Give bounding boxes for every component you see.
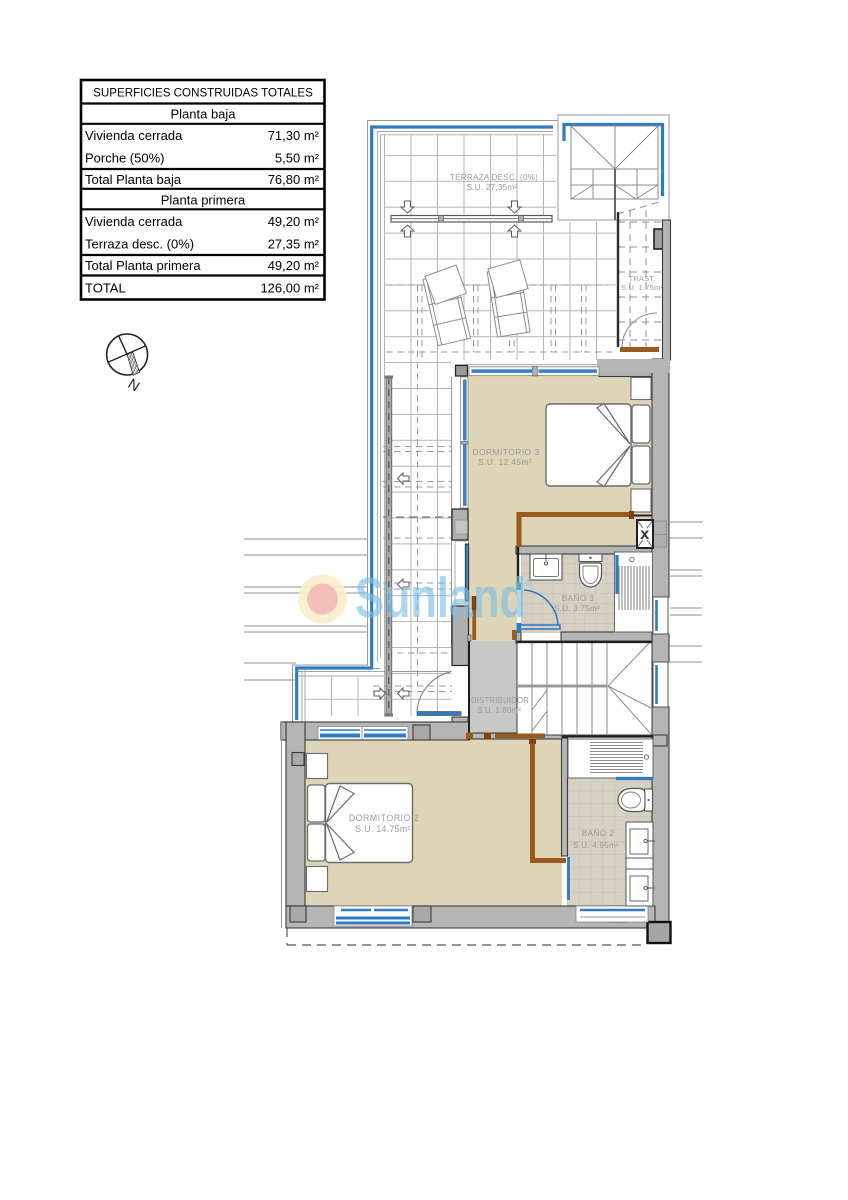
- svg-text:SUPERFICIES CONSTRUIDAS TOTALE: SUPERFICIES CONSTRUIDAS TOTALES: [93, 87, 313, 100]
- svg-text:71,30 m²: 71,30 m²: [268, 128, 320, 143]
- svg-text:Porche (50%): Porche (50%): [85, 151, 164, 166]
- svg-text:S.U. 3.75m²: S.U. 3.75m²: [554, 604, 600, 613]
- svg-text:TERRAZA DESC. (0%): TERRAZA DESC. (0%): [450, 173, 538, 182]
- svg-text:BAÑO 3: BAÑO 3: [562, 593, 594, 603]
- svg-text:Total Planta baja: Total Planta baja: [85, 172, 182, 187]
- svg-text:27,35 m²: 27,35 m²: [268, 237, 320, 252]
- svg-text:DISTRIBUIDOR: DISTRIBUIDOR: [471, 696, 529, 705]
- svg-text:X: X: [641, 530, 649, 542]
- svg-text:BAÑO 2: BAÑO 2: [582, 828, 614, 838]
- svg-text:Vivienda cerrada: Vivienda cerrada: [85, 128, 183, 143]
- svg-text:S.U. 1.80m²: S.U. 1.80m²: [477, 706, 521, 715]
- svg-text:DORMITORIO 2: DORMITORIO 2: [349, 813, 419, 823]
- svg-text:49,20 m²: 49,20 m²: [268, 214, 320, 229]
- svg-text:Total Planta primera: Total Planta primera: [85, 258, 201, 273]
- svg-text:Terraza desc. (0%): Terraza desc. (0%): [85, 237, 194, 252]
- svg-text:5,50 m²: 5,50 m²: [275, 151, 320, 166]
- svg-text:®: ®: [525, 578, 533, 590]
- svg-text:49,20 m²: 49,20 m²: [268, 258, 320, 273]
- svg-text:Planta baja: Planta baja: [170, 107, 236, 122]
- svg-text:TRAST.: TRAST.: [628, 274, 655, 283]
- svg-text:Sunland: Sunland: [355, 566, 526, 630]
- svg-text:Planta primera: Planta primera: [161, 192, 246, 207]
- svg-text:S.U. 14.75m²: S.U. 14.75m²: [355, 824, 410, 834]
- svg-text:S.U. 12.45m²: S.U. 12.45m²: [478, 457, 532, 467]
- svg-text:S.U. 27,35m²: S.U. 27,35m²: [467, 183, 518, 192]
- svg-text:76,80 m²: 76,80 m²: [268, 172, 320, 187]
- svg-text:S.U. 4.95m²: S.U. 4.95m²: [573, 841, 619, 850]
- svg-text:Vivienda cerrada: Vivienda cerrada: [85, 214, 183, 229]
- svg-text:TOTAL: TOTAL: [85, 281, 126, 296]
- svg-text:DORMITORIO 3: DORMITORIO 3: [473, 447, 540, 457]
- svg-text:126,00 m²: 126,00 m²: [260, 281, 319, 296]
- svg-text:S.U. 1,75m²: S.U. 1,75m²: [621, 283, 664, 292]
